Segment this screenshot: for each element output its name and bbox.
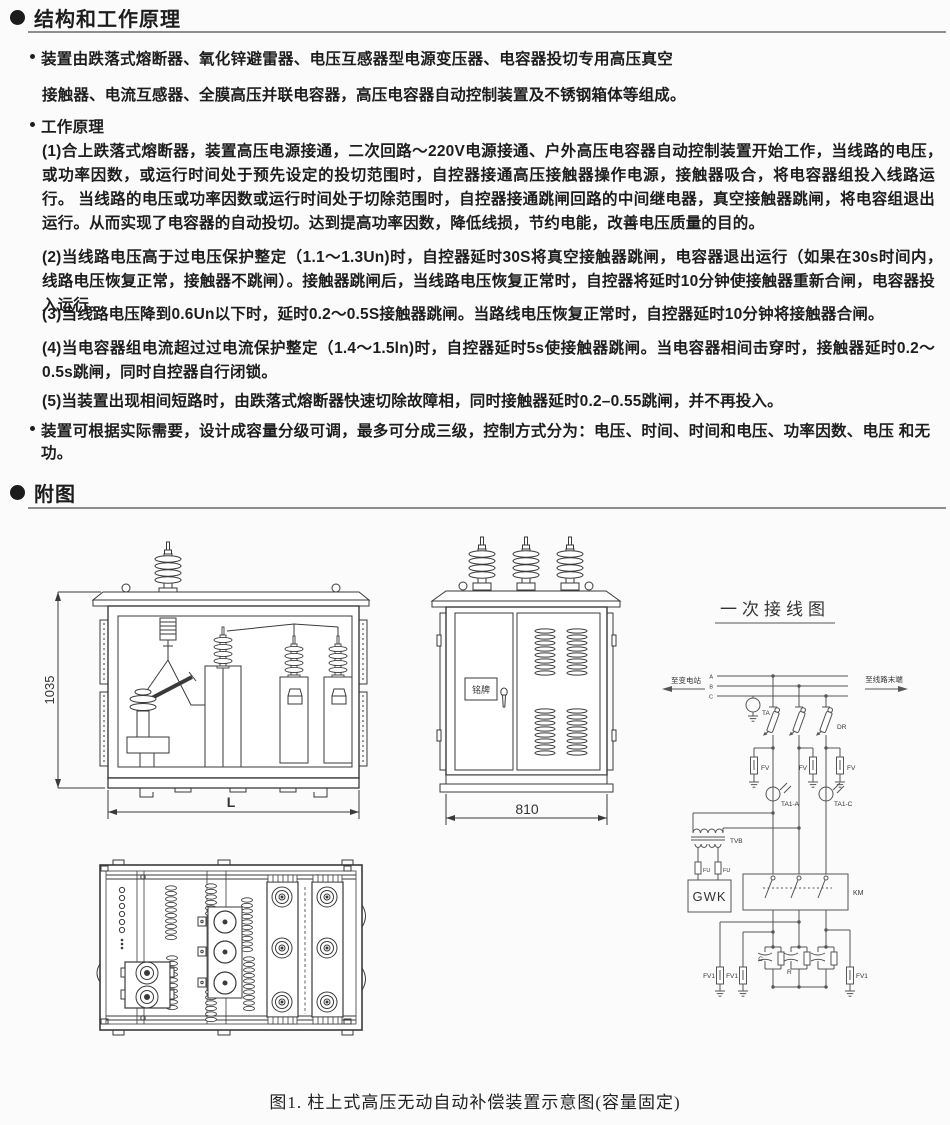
phase-b-label: B <box>709 685 713 691</box>
fv1-label: FV1 <box>726 973 738 980</box>
document-page: 结构和工作原理 装置由跌落式熔断器、氧化锌避雷器、电压互感器型电源变压器、电容器… <box>0 0 950 1125</box>
paragraph-1: (1)合上跌落式熔断器，装置高压电源接通，二次回路～220V电源接通、户外高压电… <box>42 140 935 236</box>
front-view-drawing: 1035 L <box>45 538 390 855</box>
bullet-icon <box>30 122 35 127</box>
to-line-end-label: 至线路末端 <box>865 674 903 684</box>
fv1-label: FV1 <box>703 973 715 980</box>
fv1-label: FV1 <box>856 973 868 980</box>
km-label: KM <box>853 890 864 897</box>
intro-line-2: 接触器、电流互感器、全膜高压并联电容器，高压电容器自动控制装置及不锈钢箱体等组成… <box>42 84 935 108</box>
capacity-note: 装置可根据实际需要，设计成容量分级可调，最多可分成三级，控制方式分为：电压、时间… <box>30 419 935 463</box>
width-dimension-label: L <box>227 794 236 810</box>
paragraph-5: (5)当装置出现相间短路时，由跌落式熔断器快速切除故障相，同时接触器延时0.2–… <box>42 390 935 414</box>
resistor-label: R <box>787 969 792 976</box>
ta1-a-label: TA1-A <box>781 801 800 808</box>
capacitor-label: C <box>758 956 763 963</box>
dr-label: DR <box>837 724 847 731</box>
figure-caption: 图1. 柱上式高压无动自动补偿装置示意图(容量固定) <box>0 1088 950 1113</box>
tvb-label: TVB <box>730 838 743 845</box>
fv-label: FV <box>761 765 770 772</box>
height-dimension-label: 1035 <box>42 676 57 705</box>
ta-label: TA <box>762 710 770 717</box>
section-marker-icon <box>10 485 25 500</box>
section-divider <box>28 507 946 509</box>
phase-c-label: C <box>709 695 713 701</box>
gwk-label: GWK <box>692 889 726 904</box>
fv-label: FV <box>799 765 808 772</box>
section-figures-header: 附图 <box>10 478 76 507</box>
fu-label: FU <box>723 868 730 874</box>
width-dimension-label: 810 <box>515 801 539 817</box>
intro-line-1: 装置由跌落式熔断器、氧化锌避雷器、电压互感器型电源变压器、电容器投切专用高压真空 <box>30 47 935 69</box>
ta1-c-label: TA1-C <box>834 801 853 808</box>
side-view-drawing: 铭牌 810 <box>410 533 660 833</box>
primary-wiring-diagram: 一次接线图 <box>660 595 950 1060</box>
nameplate-label: 铭牌 <box>472 684 490 695</box>
bullet-icon <box>30 54 35 59</box>
phase-a-label: A <box>709 675 713 681</box>
section-marker-icon <box>10 10 25 25</box>
working-principle-heading: 工作原理 <box>30 115 104 137</box>
paragraph-3: (3)当线路电压降到0.6Un以下时，延时0.2～0.5S接触器跳闸。当路线电压… <box>42 303 935 327</box>
top-view-drawing <box>92 852 372 1047</box>
paragraph-4: (4)当电容器组电流超过过电流保护整定（1.4～1.5ln)时，自控器延时5s使… <box>42 337 935 385</box>
section-title: 结构和工作原理 <box>34 3 181 32</box>
to-substation-label: 至变电站 <box>671 675 701 685</box>
schematic-title: 一次接线图 <box>720 600 830 619</box>
bullet-icon <box>30 426 35 431</box>
section-divider <box>28 31 946 33</box>
section-structure-header: 结构和工作原理 <box>10 3 181 32</box>
section-title: 附图 <box>34 478 76 507</box>
fv-label: FV <box>847 765 856 772</box>
fu-label: FU <box>703 868 710 874</box>
